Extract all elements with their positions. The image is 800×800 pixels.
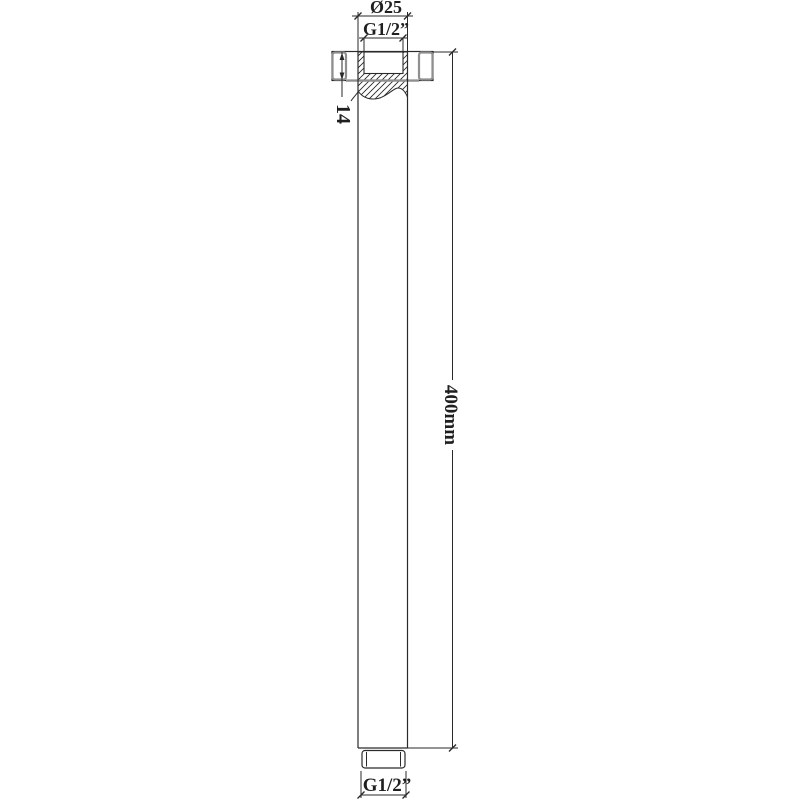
label-thread-top: G1/2” bbox=[363, 19, 409, 39]
label-flange-height: 14 bbox=[332, 104, 354, 124]
thread-bore bbox=[364, 52, 403, 74]
dimension-thread-bottom: G1/2” bbox=[358, 771, 412, 799]
bottom-connector bbox=[362, 751, 405, 769]
drawing-canvas: Ø25 G1/2” 14 400mm G1/2” bbox=[0, 0, 800, 800]
label-thread-bottom: G1/2” bbox=[363, 775, 412, 796]
bottom-thread-nipple bbox=[362, 751, 405, 769]
ceiling-flange bbox=[332, 52, 433, 102]
shower-arm-tube bbox=[358, 52, 408, 748]
label-diameter: Ø25 bbox=[370, 0, 402, 17]
label-arm-length: 400mm bbox=[440, 385, 461, 445]
dimension-arm-length: 400mm bbox=[408, 49, 462, 752]
flange-left-cap bbox=[333, 53, 347, 80]
flange-right-cap bbox=[419, 53, 433, 80]
technical-drawing: Ø25 G1/2” 14 400mm G1/2” bbox=[0, 0, 800, 800]
break-line-tail bbox=[351, 92, 358, 101]
dimension-thread-top: G1/2” bbox=[359, 19, 409, 51]
